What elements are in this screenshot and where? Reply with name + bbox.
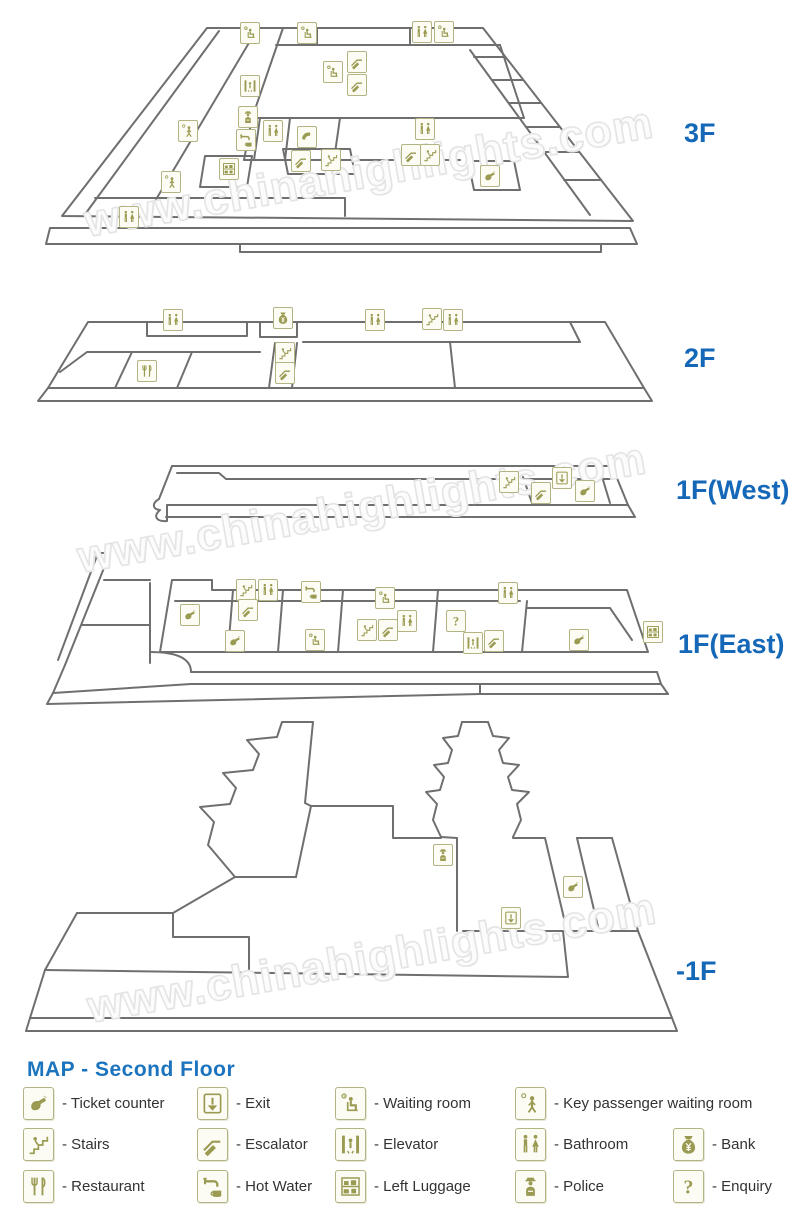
map-icon-restaurant: [137, 360, 157, 382]
legend-label: - Waiting room: [374, 1095, 471, 1112]
legend-label: - Bathroom: [554, 1136, 628, 1153]
map-icon-bathroom: [415, 118, 435, 140]
stairs-icon: [23, 1128, 54, 1161]
watermark-text: www.chinahighlights.com: [83, 882, 660, 1033]
map-icon-bathroom: [397, 610, 417, 632]
map-icon-bathroom: [412, 21, 432, 43]
map-icon-telephone: [297, 126, 317, 148]
station-floor-map-page: ?: [0, 0, 799, 1214]
map-icon-bathroom: [263, 120, 283, 142]
floor-label-1f-east: 1F(East): [678, 629, 785, 660]
legend-item-ticket-counter: - Ticket counter: [23, 1087, 165, 1120]
legend-label: - Enquiry: [712, 1178, 772, 1195]
map-icon-waiting-room: [305, 629, 325, 651]
map-icon-left-luggage: [643, 621, 663, 643]
map-icon-escalator: [484, 630, 504, 652]
map-icon-stairs: [420, 144, 440, 166]
map-icon-police: [238, 106, 258, 128]
legend-item-waiting-room: - Waiting room: [335, 1087, 471, 1120]
map-icon-escalator: [275, 362, 295, 384]
legend-label: - Exit: [236, 1095, 270, 1112]
floor-label-3f: 3F: [684, 118, 716, 149]
map-icon-key-passenger: [161, 171, 181, 193]
map-icon-left-luggage: [219, 158, 239, 180]
bathroom-icon: [515, 1128, 546, 1161]
legend-label: - Stairs: [62, 1136, 110, 1153]
legend-item-escalator: - Escalator: [197, 1128, 308, 1161]
map-icon-escalator: [238, 599, 258, 621]
floor-label-b1: -1F: [676, 956, 717, 987]
exit-icon: [197, 1087, 228, 1120]
map-icon-stairs: [499, 471, 519, 493]
legend-item-elevator: - Elevator: [335, 1128, 438, 1161]
escalator-icon: [197, 1128, 228, 1161]
map-icon-ticket-counter: [569, 629, 589, 651]
map-icon-escalator: [531, 482, 551, 504]
restaurant-icon: [23, 1170, 54, 1203]
map-icon-escalator: [347, 51, 367, 73]
legend-item-bathroom: - Bathroom: [515, 1128, 628, 1161]
map-icon-escalator: [378, 619, 398, 641]
map-icon-bathroom: [119, 206, 139, 228]
map-icon-escalator: [347, 74, 367, 96]
map-icon-police: [433, 844, 453, 866]
ticket-counter-icon: [23, 1087, 54, 1120]
map-icon-waiting-room: [323, 61, 343, 83]
enquiry-icon: [673, 1170, 704, 1203]
map-icon-stairs: [275, 342, 295, 364]
legend-item-key-passenger: - Key passenger waiting room: [515, 1087, 752, 1120]
map-icon-elevator: [463, 632, 483, 654]
watermark-text: www.chinahighlights.com: [73, 432, 650, 583]
map-icon-stairs: [236, 579, 256, 601]
map-icon-bathroom: [258, 579, 278, 601]
legend-label: - Hot Water: [236, 1178, 312, 1195]
elevator-icon: [335, 1128, 366, 1161]
map-icon-hot-water: [301, 581, 321, 603]
key-passenger-icon: [515, 1087, 546, 1120]
map-icon-ticket-counter: [563, 876, 583, 898]
map-icon-bathroom: [443, 309, 463, 331]
legend-label: - Restaurant: [62, 1178, 145, 1195]
map-icon-stairs: [422, 308, 442, 330]
map-icon-waiting-room: [375, 587, 395, 609]
legend-label: - Elevator: [374, 1136, 438, 1153]
legend-label: - Key passenger waiting room: [554, 1095, 752, 1112]
hot-water-icon: [197, 1170, 228, 1203]
legend-item-hot-water: - Hot Water: [197, 1170, 312, 1203]
map-icon-exit: [552, 467, 572, 489]
legend-item-exit: - Exit: [197, 1087, 270, 1120]
legend-item-left-luggage: - Left Luggage: [335, 1170, 471, 1203]
floor-label-1f-west: 1F(West): [676, 475, 790, 506]
map-icon-hot-water: [236, 129, 256, 151]
legend-label: - Ticket counter: [62, 1095, 165, 1112]
legend-label: - Escalator: [236, 1136, 308, 1153]
map-icon-waiting-room: [434, 21, 454, 43]
map-icon-stairs: [357, 619, 377, 641]
waiting-room-icon: [335, 1087, 366, 1120]
map-icon-elevator: [240, 75, 260, 97]
legend-title: MAP - Second Floor: [27, 1058, 235, 1082]
floor-label-2f: 2F: [684, 343, 716, 374]
map-icon-ticket-counter: [225, 630, 245, 652]
map-icon-exit: [501, 907, 521, 929]
legend-label: - Bank: [712, 1136, 755, 1153]
map-icon-key-passenger: [178, 120, 198, 142]
map-icon-bathroom: [365, 309, 385, 331]
legend-item-police: - Police: [515, 1170, 604, 1203]
legend-item-enquiry: - Enquiry: [673, 1170, 772, 1203]
map-icon-escalator: [291, 150, 311, 172]
legend-label: - Police: [554, 1178, 604, 1195]
legend-item-bank: - Bank: [673, 1128, 755, 1161]
map-icon-escalator: [401, 144, 421, 166]
bank-icon: [673, 1128, 704, 1161]
map-icon-bank: [273, 307, 293, 329]
map-icon-waiting-room: [297, 22, 317, 44]
left-luggage-icon: [335, 1170, 366, 1203]
police-icon: [515, 1170, 546, 1203]
map-icon-ticket-counter: [480, 165, 500, 187]
floorplan-2f: [38, 322, 652, 401]
map-icon-ticket-counter: [575, 480, 595, 502]
legend-item-stairs: - Stairs: [23, 1128, 110, 1161]
map-icon-bathroom: [498, 582, 518, 604]
legend-label: - Left Luggage: [374, 1178, 471, 1195]
map-icon-ticket-counter: [180, 604, 200, 626]
map-icon-waiting-room: [240, 22, 260, 44]
map-icon-enquiry: [446, 610, 466, 632]
map-icon-stairs: [321, 149, 341, 171]
legend-item-restaurant: - Restaurant: [23, 1170, 145, 1203]
map-icon-bathroom: [163, 309, 183, 331]
